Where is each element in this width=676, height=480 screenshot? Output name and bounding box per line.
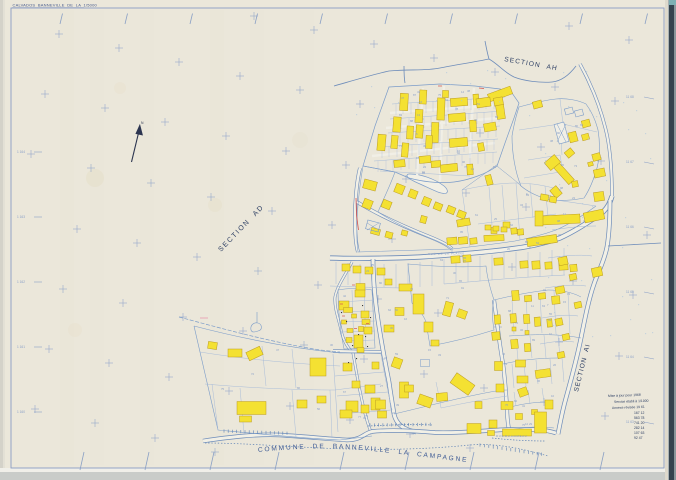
svg-text:1 162: 1 162 [17,280,25,284]
svg-text:16: 16 [416,156,420,160]
svg-text:60: 60 [395,308,399,312]
svg-text:47: 47 [276,348,280,352]
svg-text:61: 61 [475,213,479,217]
svg-text:CALVADOS BANNEVILLE DE LA: CALVADOS BANNEVILLE DE LA 1/5000 [13,2,98,7]
svg-text:62: 62 [510,223,514,227]
svg-text:563 78: 563 78 [634,416,644,420]
svg-text:15: 15 [428,348,432,352]
svg-text:34: 34 [520,203,524,207]
svg-text:30: 30 [453,271,457,275]
svg-text:63: 63 [542,304,546,308]
svg-text:30: 30 [390,326,394,330]
svg-text:10: 10 [457,149,461,153]
svg-text:13: 13 [417,113,421,117]
svg-text:11 64: 11 64 [626,355,634,359]
svg-text:70: 70 [463,259,467,263]
svg-text:167 12: 167 12 [634,411,644,415]
svg-text:71: 71 [446,296,450,300]
svg-text:92 47: 92 47 [634,436,643,440]
svg-text:83: 83 [526,193,530,197]
svg-text:R U E D U H A M E A U: R U E D U H A M E A U [496,434,527,438]
svg-text:91: 91 [422,170,426,174]
svg-text:11: 11 [531,304,534,308]
svg-text:26: 26 [553,363,557,367]
svg-text:38: 38 [467,89,471,93]
svg-text:22: 22 [474,118,478,122]
svg-text:80: 80 [379,281,383,285]
svg-text:33: 33 [567,292,571,296]
svg-text:10: 10 [551,394,555,398]
svg-text:51: 51 [445,98,449,102]
svg-text:11 63: 11 63 [626,420,634,424]
svg-text:77: 77 [358,415,362,419]
svg-text:1 164: 1 164 [17,150,25,154]
svg-text:33: 33 [504,362,508,366]
svg-text:71: 71 [548,194,552,198]
svg-text:42: 42 [343,294,347,298]
svg-text:95: 95 [460,230,464,234]
svg-text:65: 65 [459,279,463,283]
svg-text:69: 69 [548,318,552,322]
svg-text:39: 39 [396,403,400,407]
svg-text:67: 67 [343,390,347,394]
svg-text:62: 62 [388,308,392,312]
svg-text:11 67: 11 67 [626,160,634,164]
svg-text:75: 75 [371,263,375,267]
svg-text:86: 86 [297,386,301,390]
svg-text:10: 10 [549,332,553,336]
svg-text:78: 78 [455,107,459,111]
svg-text:51: 51 [493,165,497,169]
svg-text:89: 89 [532,338,536,342]
svg-text:R U E D E L A P L A I N: R U E D E L A P L A I N E [428,251,464,256]
svg-text:49: 49 [423,144,427,148]
svg-text:24: 24 [392,411,396,415]
svg-text:72: 72 [251,372,255,376]
svg-text:29: 29 [529,422,533,426]
svg-text:107 63: 107 63 [634,431,644,435]
svg-text:282 14: 282 14 [634,426,644,430]
svg-text:88: 88 [410,119,414,123]
svg-text:41: 41 [522,404,526,408]
svg-text:14: 14 [471,167,475,171]
svg-text:86: 86 [495,115,499,119]
svg-text:23: 23 [366,269,370,273]
svg-text:74: 74 [365,414,369,418]
svg-text:96: 96 [462,160,466,164]
svg-text:16: 16 [419,100,423,104]
svg-text:23: 23 [572,196,576,200]
svg-text:23: 23 [423,165,427,169]
svg-text:80: 80 [575,124,579,128]
svg-text:11: 11 [563,212,566,216]
svg-text:70: 70 [410,287,414,291]
svg-text:1 161: 1 161 [17,345,25,349]
svg-text:93: 93 [543,288,547,292]
svg-text:75: 75 [505,403,509,407]
svg-text:14: 14 [461,90,465,94]
svg-text:30: 30 [330,343,334,347]
svg-text:1 163: 1 163 [17,215,25,219]
svg-text:73: 73 [574,164,578,168]
svg-text:1 160: 1 160 [17,410,25,414]
svg-text:76: 76 [464,165,468,169]
svg-text:91: 91 [461,286,465,290]
svg-text:27: 27 [380,384,384,388]
svg-text:54: 54 [536,241,540,245]
svg-text:98: 98 [557,219,561,223]
svg-text:88: 88 [508,309,512,313]
svg-text:72: 72 [515,321,519,325]
svg-text:55: 55 [549,312,553,316]
svg-text:12: 12 [525,422,529,426]
svg-text:63: 63 [440,258,444,262]
svg-text:36: 36 [537,379,541,383]
svg-text:741 20: 741 20 [634,421,644,425]
svg-text:65: 65 [580,123,584,127]
svg-text:32: 32 [520,328,524,332]
svg-text:71: 71 [399,144,403,148]
svg-text:82: 82 [514,399,518,403]
svg-text:75: 75 [221,387,225,391]
svg-text:90: 90 [557,131,561,135]
svg-text:85: 85 [525,240,529,244]
svg-text:43: 43 [384,356,388,360]
svg-text:20: 20 [561,163,565,167]
svg-text:47: 47 [401,96,405,100]
svg-text:83: 83 [399,113,403,117]
svg-text:25: 25 [494,217,498,221]
svg-text:50: 50 [317,407,321,411]
svg-text:20: 20 [507,247,511,251]
svg-text:43: 43 [417,90,421,94]
svg-text:33: 33 [438,353,442,357]
svg-text:46: 46 [558,233,562,237]
svg-text:16: 16 [404,317,408,321]
svg-text:11 68: 11 68 [626,95,634,99]
svg-text:11 66: 11 66 [626,225,634,229]
svg-text:51: 51 [477,102,481,106]
svg-text:38: 38 [550,139,554,143]
svg-text:59: 59 [395,352,399,356]
svg-text:15: 15 [563,300,567,304]
svg-text:75: 75 [438,93,442,97]
svg-text:76: 76 [502,352,506,356]
